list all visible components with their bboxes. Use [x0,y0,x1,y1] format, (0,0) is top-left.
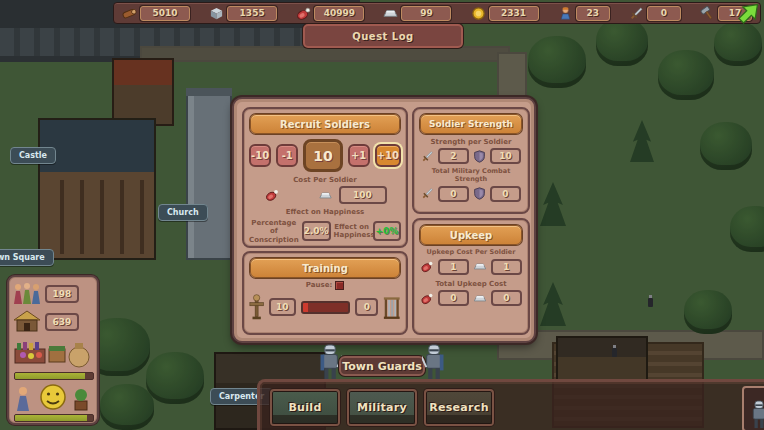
map-tree [100,384,154,430]
map-villager-sprite [648,298,653,307]
resource-iron: 99 [383,6,451,21]
map-tree [528,36,586,88]
market-progress-bar [14,372,94,380]
upkeep-section: Upkeep Upkeep Cost Per Soldier 1 1 Total… [412,218,530,335]
iron-icon [473,260,487,273]
training-progress-fill [303,303,308,312]
gold-count: 2331 [489,6,539,21]
recruit-header-button[interactable]: Recruit Soldiers [250,114,400,134]
recruit-section: Recruit Soldiers -10 -1 10 +1 +10 Cost P… [242,107,408,248]
total-defense-box: 0 [490,186,521,202]
sword-icon [421,187,434,200]
iron-icon [383,6,398,21]
map-pine-tree [540,182,566,226]
hammers-count: 17 [718,6,752,21]
build-button-label: Build [288,401,321,414]
resource-population: 23 [558,6,610,21]
iron-icon [473,292,487,305]
wood-count: 5010 [140,6,190,21]
recruit-minus-10-button[interactable]: -10 [249,144,271,167]
in-training-box: 10 [269,298,296,316]
map-tree [596,18,648,66]
swords-count: 0 [647,6,681,21]
resource-gold: 2331 [471,6,539,21]
military-button[interactable]: Military [347,389,417,426]
sword-icon [421,150,434,163]
map-pine-tree [540,282,566,326]
map-tree [146,352,204,404]
map-tree [730,206,764,252]
conscription-value-box: 2.0% [302,221,331,241]
recruit-plus-1-button[interactable]: +1 [348,144,370,167]
house-icon [13,310,41,332]
happiness-progress-fill [15,415,87,421]
hammer-icon [700,6,715,21]
meat-icon [420,260,434,273]
upkeep-header-button[interactable]: Upkeep [420,225,522,245]
build-button[interactable]: Build [270,389,340,426]
sword-icon [629,6,644,21]
map-tree [700,122,752,170]
guard-knight-sprite [422,344,446,382]
meat-count: 40999 [314,6,364,21]
resource-hammers: 17 [700,6,752,21]
market-goods-icon [13,337,93,369]
town-stats-panel: 198 639 [7,275,99,425]
attack-per-soldier-box: 2 [438,148,469,164]
upkeep-per-soldier-label: Upkeep Cost Per Soldier [419,249,523,257]
stone-count: 1355 [227,6,277,21]
research-button[interactable]: Research [424,389,494,426]
map-barn [556,336,648,382]
recruit-amount-display: 10 [303,139,342,172]
upkeep-meat-per-box: 1 [438,259,469,275]
upkeep-iron-per-box: 1 [491,259,522,275]
shield-icon [473,150,486,163]
total-meat-upkeep-box: 0 [438,290,469,306]
stone-icon [209,6,224,21]
resource-swords: 0 [629,6,681,21]
training-progress-bar [301,301,351,314]
meat-icon [264,188,280,202]
meat-icon [420,292,434,305]
cost-value-box: 100 [339,186,387,204]
map-house-timber-beams [44,180,150,254]
recruit-plus-10-button[interactable]: +10 [375,144,401,167]
map-tree [684,290,732,334]
population-count: 23 [576,6,610,21]
town-guards-title: Town Guards [339,356,425,376]
strength-per-soldier-label: Strength per Soldier [419,138,523,146]
defense-per-soldier-box: 10 [490,148,521,164]
effect-on-happiness-heading: Effect on Happiness [249,208,401,216]
map-label-town-square: Town Square [0,249,54,266]
bottom-menu-bar: Build Military Research [257,379,764,430]
military-window: Recruit Soldiers -10 -1 10 +1 +10 Cost P… [232,97,536,343]
trained-count-box: 0 [355,298,378,316]
total-attack-box: 0 [438,186,469,202]
weapon-rack-icon [383,293,401,321]
shield-icon [473,187,486,200]
military-button-label: Military [357,401,407,414]
map-building-red-roof [112,58,174,126]
housing-total-box[interactable]: 639 [45,313,79,331]
soldier-strength-section: Soldier Strength Strength per Soldier 2 … [412,107,530,214]
training-dummy-icon [249,292,264,322]
villagers-icon [12,282,42,306]
map-villager-sprite [612,348,617,357]
total-iron-upkeep-box: 0 [491,290,522,306]
happiness-icon [13,383,93,413]
resource-wood: 5010 [122,6,190,21]
happiness-effect-label: Effect on Happiness [334,223,370,240]
total-upkeep-label: Total Upkeep Cost [419,280,523,288]
map-stone-tower [186,88,232,260]
research-button-label: Research [429,401,489,414]
cost-per-soldier-label: Cost Per Soldier [249,176,401,184]
map-label-castle: Castle [10,147,56,164]
resource-stone: 1355 [209,6,277,21]
map-label-church: Church [158,204,208,221]
iron-icon [318,189,333,202]
iron-count: 99 [401,6,451,21]
soldier-strength-header-button[interactable]: Soldier Strength [420,114,522,134]
training-header-button[interactable]: Training [250,258,400,278]
villager-icon [558,6,573,21]
recruit-minus-1-button[interactable]: -1 [276,144,298,167]
population-total-box[interactable]: 198 [45,285,79,303]
wood-icon [122,6,137,21]
map-tree [658,50,714,100]
coin-icon [471,6,486,21]
resource-meat: 40999 [296,6,364,21]
guard-knight-sprite [750,400,764,430]
pause-label: Pause: [306,281,332,289]
total-combat-strength-label: Total Military Combat Strength [419,168,523,184]
meat-icon [296,6,311,21]
game-screen: Castle Church Town Square Carpenter 5010… [0,0,764,430]
guard-unit-portrait[interactable] [742,386,764,430]
resource-bar: 5010 1355 40999 99 2331 23 0 17 [113,2,761,24]
map-road-top [140,46,510,62]
map-pine-tree [630,120,654,162]
conscription-label: Percentage of Conscription [249,219,299,244]
map-tree [714,22,762,66]
training-section: Training Pause: 10 0 [242,251,408,335]
pause-checkbox[interactable] [335,281,344,290]
quest-log-button[interactable]: Quest Log [303,24,463,48]
happiness-progress-bar [14,414,94,422]
market-progress-fill [15,373,85,379]
happiness-effect-value-box: +0% [373,221,401,241]
